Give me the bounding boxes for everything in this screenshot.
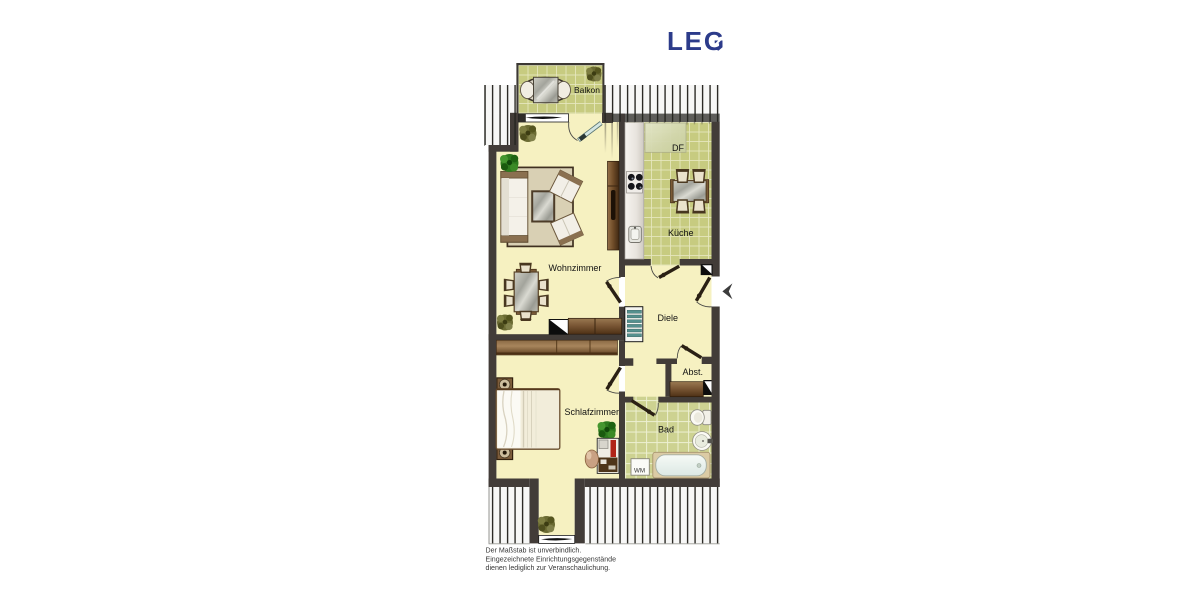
svg-text:WM: WM	[634, 468, 645, 475]
svg-text:Schlafzimmer: Schlafzimmer	[565, 407, 620, 417]
svg-text:LEG: LEG	[667, 26, 726, 56]
svg-text:Küche: Küche	[668, 228, 694, 238]
svg-text:DF: DF	[672, 143, 684, 153]
svg-text:Abst.: Abst.	[683, 367, 704, 377]
svg-text:Wohnzimmer: Wohnzimmer	[549, 263, 602, 273]
svg-text:Diele: Diele	[658, 313, 679, 323]
svg-text:Der Maßstab ist unverbindlich.: Der Maßstab ist unverbindlich.	[486, 547, 582, 555]
svg-text:Eingezeichnete Einrichtungsgeg: Eingezeichnete Einrichtungsgegenstände	[486, 555, 617, 563]
svg-text:Balkon: Balkon	[574, 85, 600, 95]
svg-text:dienen lediglich zur Veranscha: dienen lediglich zur Veranschaulichung.	[486, 564, 611, 572]
svg-text:Bad: Bad	[658, 424, 674, 434]
